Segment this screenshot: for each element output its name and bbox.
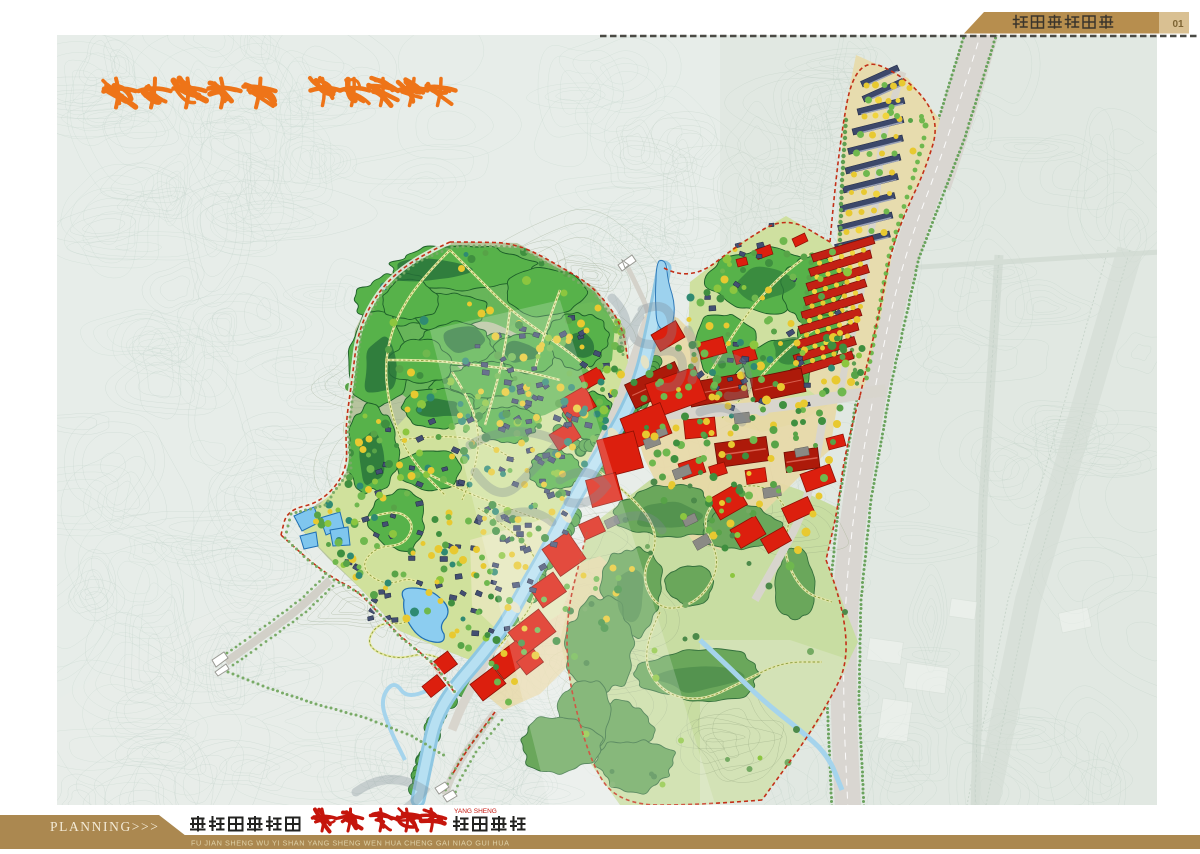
svg-text:PLANNING>>>: PLANNING>>> [50, 819, 159, 834]
svg-text:01: 01 [1172, 19, 1184, 30]
svg-text:YANG SHENG: YANG SHENG [454, 808, 497, 815]
svg-text:FU JIAN SHENG WU YI SHAN YANG: FU JIAN SHENG WU YI SHAN YANG SHENG WEN … [191, 839, 509, 848]
